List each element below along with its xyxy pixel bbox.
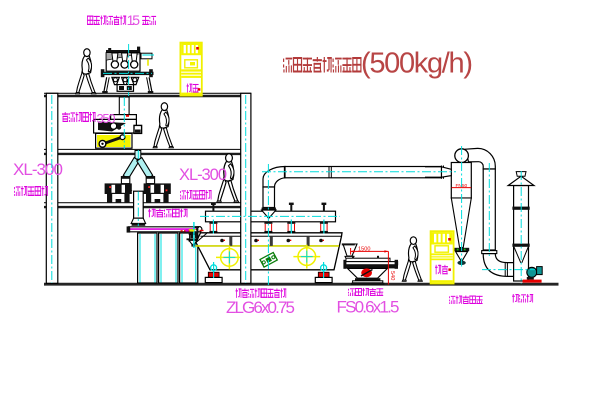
- svg-text:540: 540: [389, 271, 395, 280]
- svg-text:FS0.6x1.5: FS0.6x1.5: [337, 298, 400, 317]
- svg-text:350: 350: [97, 111, 116, 126]
- svg-text:1500: 1500: [358, 247, 370, 253]
- svg-text:1.5: 1.5: [127, 12, 141, 28]
- svg-text:(500kg/h): (500kg/h): [361, 48, 473, 80]
- svg-text:XL-300: XL-300: [13, 160, 63, 179]
- svg-text:XL-300: XL-300: [179, 166, 227, 184]
- svg-text:ZLG6x0.75: ZLG6x0.75: [226, 298, 295, 317]
